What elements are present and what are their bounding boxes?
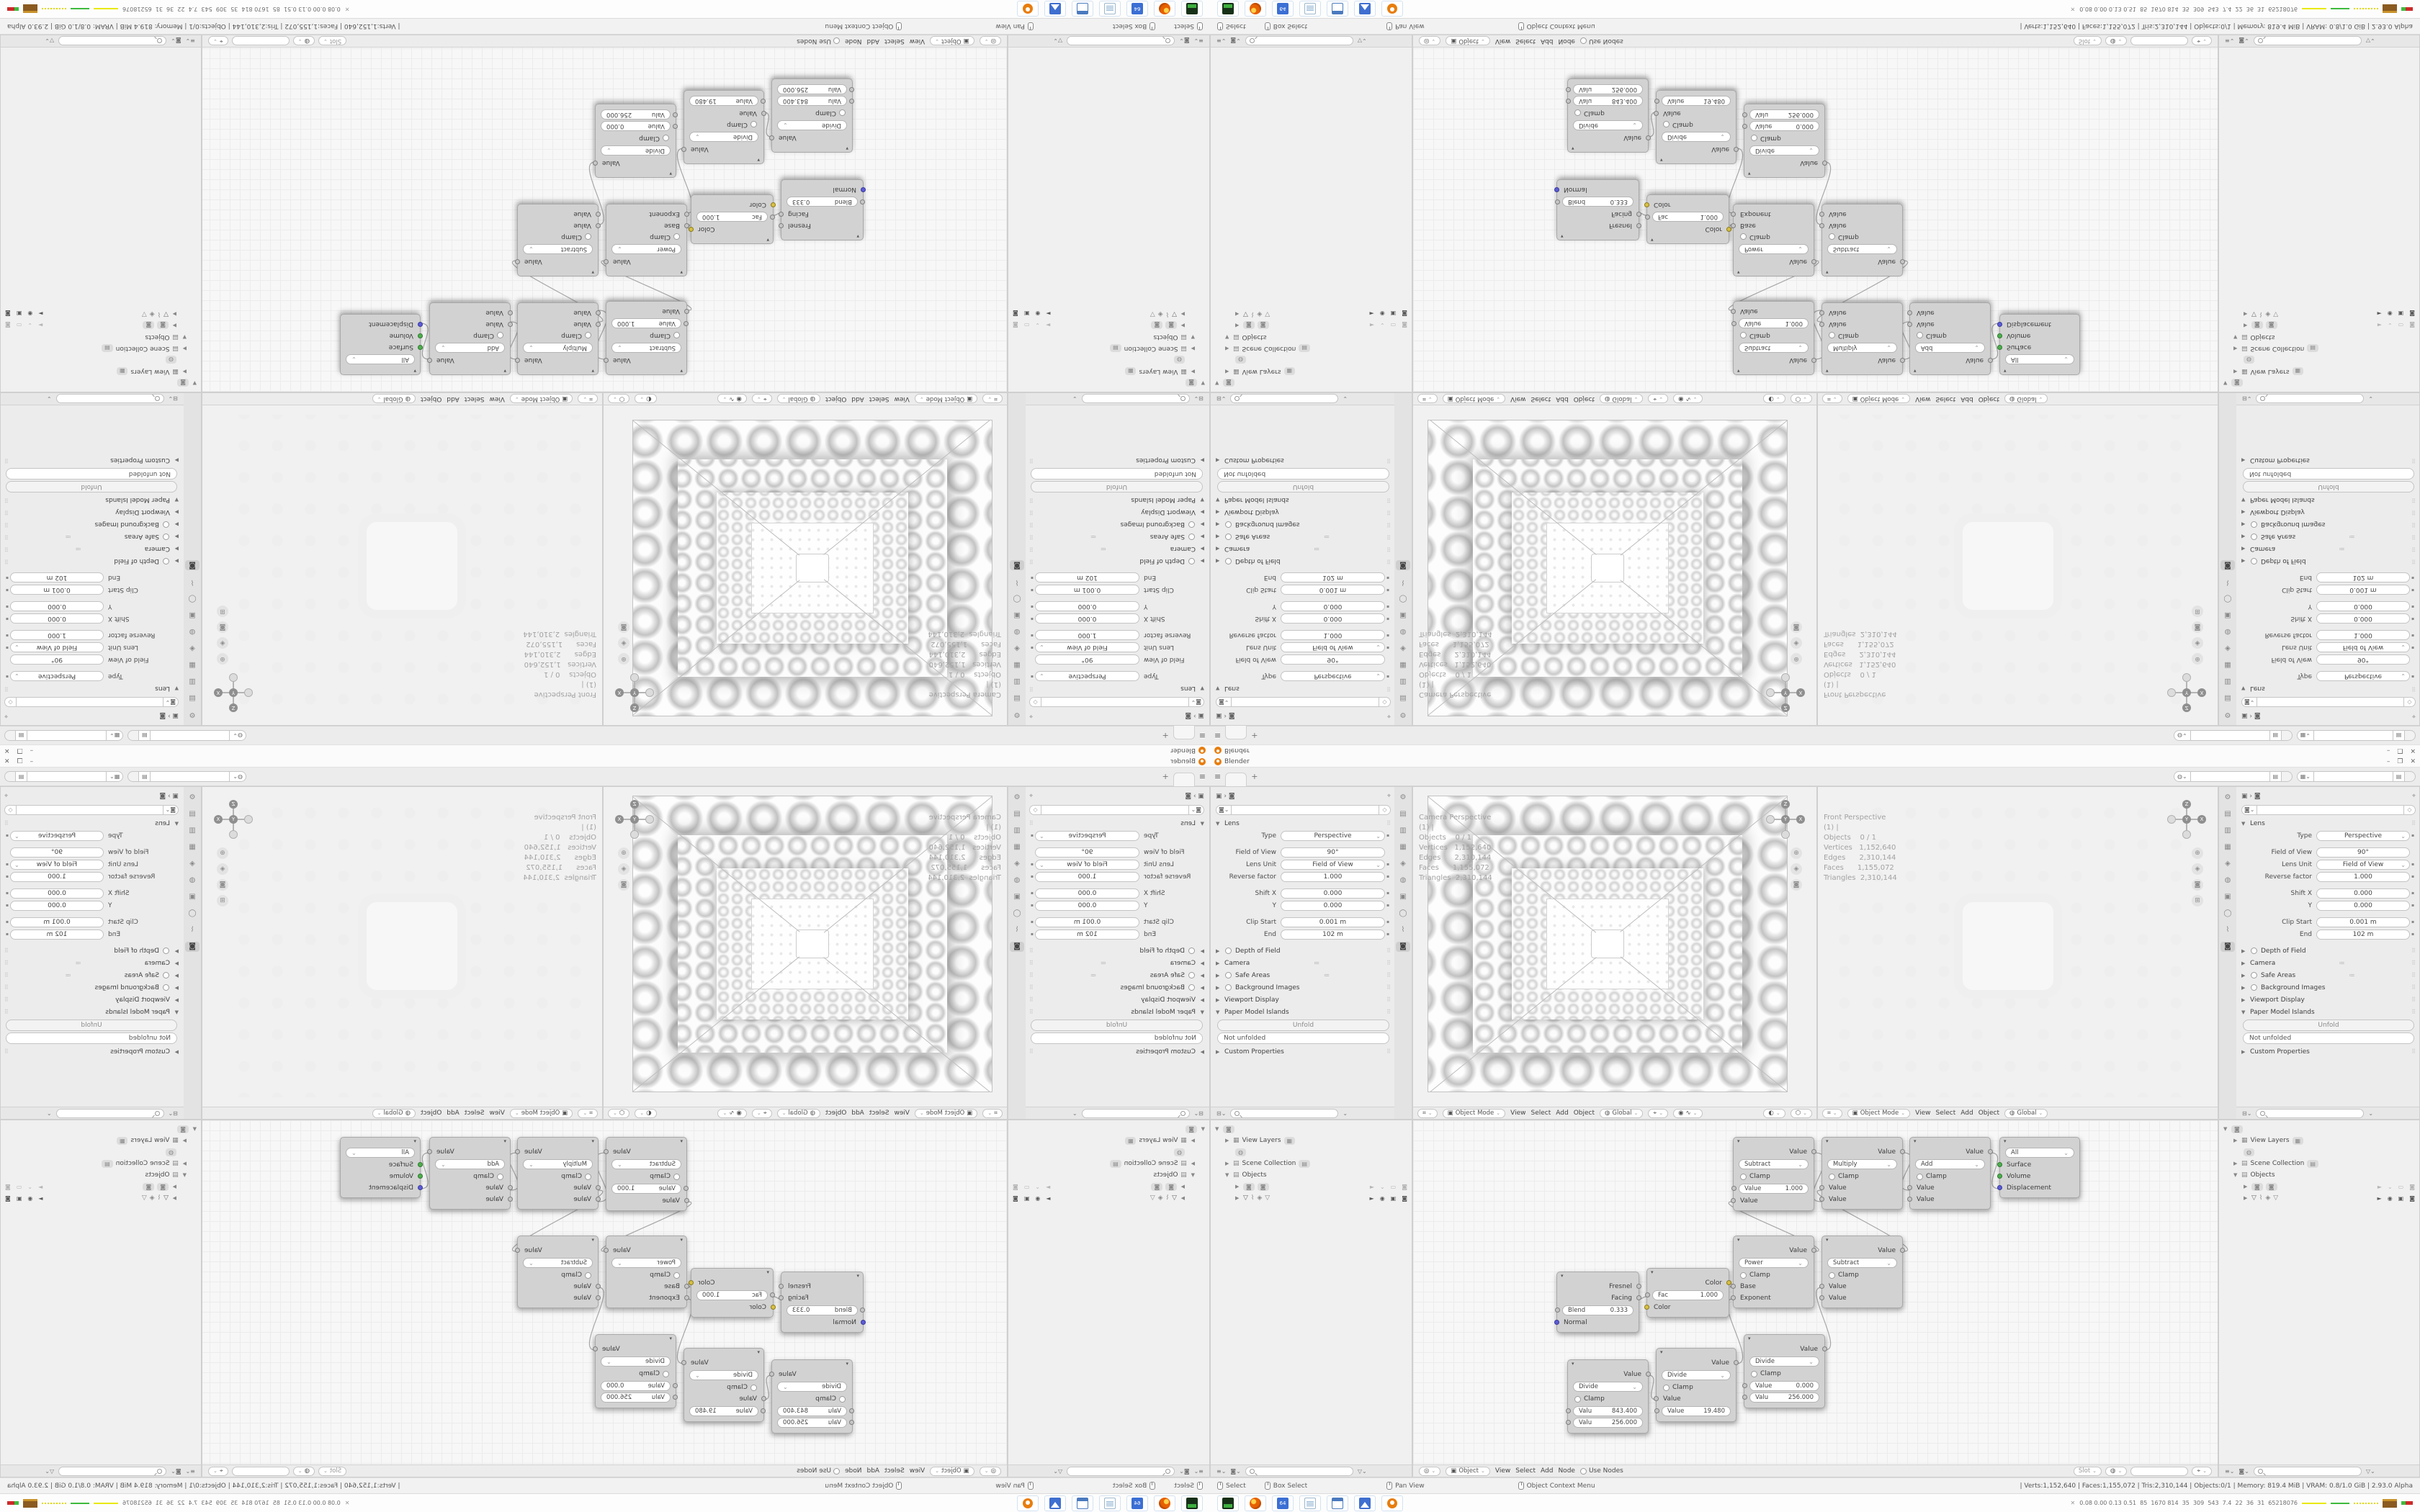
taskbar-image-viewer-icon[interactable] — [1044, 1495, 1066, 1511]
reverse-factor-field[interactable]: 1.000 — [1281, 631, 1385, 641]
close-button[interactable]: ✕ — [4, 758, 10, 765]
outliner-search-input[interactable] — [2254, 37, 2362, 46]
reverse-factor-field[interactable]: 1.000 — [2316, 872, 2410, 882]
tab-object[interactable]: ▣ — [1010, 892, 1024, 902]
hide-icon[interactable]: ⌄ — [27, 1184, 32, 1190]
panel-viewport-display[interactable]: ▶Viewport Display⠿ — [4, 994, 179, 1006]
material-output-node[interactable]: ▾ All⌄ Surface Volume Displacement — [340, 1137, 421, 1198]
minimize-button[interactable]: – — [30, 758, 34, 765]
math-operation-dropdown[interactable]: Divide⌄ — [1662, 1370, 1731, 1380]
selectable-icon[interactable]: ► — [38, 1184, 42, 1190]
gizmo-x-neg[interactable] — [2167, 815, 2176, 824]
panel-lens[interactable]: ▼Lens⠿ — [1029, 817, 1204, 829]
dof-checkbox[interactable] — [1225, 558, 1232, 564]
math-divide-node[interactable]: ▾ Value Divide⌄ Clamp Valu843.400 Valu25… — [771, 1359, 853, 1434]
outliner-search-input[interactable] — [1245, 37, 1353, 46]
workspace-tab[interactable] — [1173, 726, 1195, 740]
panel-paper-model-islands[interactable]: ▼Paper Model Islands⠿ — [4, 1006, 179, 1018]
filter-dropdown[interactable]: ▽⌄ — [2366, 38, 2375, 45]
slot-dropdown[interactable]: Slot⌄ — [318, 37, 346, 46]
panel-depth-of-field[interactable]: ▶Depth of Field⠿ — [2241, 555, 2416, 567]
panel-custom-properties[interactable]: ▶Custom Properties⠿ — [4, 454, 179, 467]
outliner-row-view-layers[interactable]: ▶▦View Layers▦ — [1008, 1135, 1209, 1146]
pan-hand-icon[interactable]: ◈ — [217, 863, 228, 875]
clip-start-field[interactable]: 0.001 m — [1281, 917, 1385, 927]
invert-node[interactable]: ▾ Color Fac1.000 Color — [691, 1268, 774, 1318]
fake-user-shield-icon[interactable]: ◇ — [2404, 697, 2416, 707]
editor-type-dropdown[interactable]: ◎⌄ — [1419, 37, 1440, 46]
scene-selector[interactable]: ◍⌄▤ — [2174, 730, 2293, 741]
clamp-checkbox[interactable] — [585, 234, 591, 240]
panel-safe-areas[interactable]: ▶Safe Areas≔⠿ — [1216, 969, 1391, 981]
panel-camera[interactable]: ▶Camera≔⠿ — [4, 957, 179, 969]
tab-tool[interactable]: ⚙ — [1396, 709, 1410, 719]
math-add-node[interactable]: ▾ Value Add⌄ Clamp Value Value — [429, 1137, 511, 1210]
render-disable-icon[interactable]: ◙ — [1402, 1195, 1407, 1202]
menu-add[interactable]: Add — [447, 1110, 459, 1117]
reverse-factor-field[interactable]: 1.000 — [1035, 872, 1139, 882]
gizmo-x-neg[interactable] — [2167, 688, 2176, 697]
panel-depth-of-field[interactable]: ▶Depth of Field⠿ — [1216, 555, 1391, 567]
taskbar-firefox-icon[interactable] — [1154, 1, 1175, 17]
editor-type-dropdown[interactable]: ◎⌄ — [980, 37, 1001, 46]
value-field[interactable]: Valu256.000 — [1573, 84, 1643, 94]
hide-icon[interactable]: ⌄ — [1380, 1184, 1385, 1190]
reverse-factor-field[interactable]: 1.000 — [2316, 631, 2410, 641]
panel-custom-properties[interactable]: ▶Custom Properties⠿ — [4, 1045, 179, 1058]
display-mode-dropdown[interactable]: ≡⌄ — [1216, 38, 1226, 45]
value-field[interactable]: Value0.000 — [1749, 1381, 1819, 1391]
clamp-checkbox[interactable] — [1740, 333, 1747, 339]
gizmo-y-axis[interactable]: Y — [630, 688, 639, 697]
node-collapse-arrow[interactable]: ▾ — [1910, 1138, 1990, 1146]
outliner-row-scene-collection[interactable]: ▶▤Scene Collection▤ — [1211, 1158, 1412, 1169]
material-icon-dropdown[interactable]: ◍⌄ — [2105, 37, 2127, 46]
bg-images-checkbox[interactable] — [163, 984, 169, 991]
tray-close-icon[interactable]: ✕ — [345, 6, 350, 12]
minimize-button[interactable]: – — [30, 747, 34, 755]
tab-object[interactable]: ▣ — [1010, 610, 1024, 620]
pin-icon[interactable]: ⌖ — [1387, 793, 1391, 800]
orientation-dropdown[interactable]: ◍Global⌄ — [372, 1109, 416, 1118]
taskbar-system-monitor-icon[interactable] — [1181, 1, 1203, 17]
camera-view-icon[interactable]: ◙ — [217, 621, 228, 633]
taskbar-notepad-icon[interactable] — [1099, 1, 1121, 17]
render-disable-icon[interactable]: ◙ — [1402, 311, 1407, 318]
outliner-row-camera-object[interactable]: ▶◙◙►⌄▭◙ — [1, 320, 201, 331]
panel-paper-model-islands[interactable]: ▼Paper Model Islands⠿ — [1216, 1006, 1391, 1018]
invert-node[interactable]: ▾ Color Fac1.000 Color — [1646, 194, 1729, 244]
clamp-checkbox[interactable] — [1740, 234, 1747, 240]
menu-hamburger-icon[interactable]: ≡ — [1214, 731, 1221, 740]
zoom-icon[interactable]: ⊕ — [618, 653, 629, 665]
pin-icon[interactable]: ⌖ — [2412, 793, 2416, 800]
outliner-row-camera-object[interactable]: ▶◙◙►⌄▭◙ — [1008, 320, 1209, 331]
safe-areas-checkbox[interactable] — [1188, 534, 1195, 540]
editor-type-dropdown[interactable]: ⌗⌄ — [982, 1109, 1003, 1118]
node-collapse-arrow[interactable]: ▾ — [1734, 1138, 1814, 1146]
orientation-dropdown[interactable]: ◍Global⌄ — [777, 1109, 820, 1118]
tab-physics[interactable]: ◯ — [1396, 909, 1410, 919]
tab-constraints[interactable]: ⌇ — [2220, 925, 2235, 935]
tab-view-layer[interactable]: ▦ — [2220, 660, 2235, 670]
math-subtract-node[interactable]: ▾ Value Subtract⌄ Clamp Value1.000 Value — [1733, 301, 1814, 375]
math-power-node[interactable]: ▾ Value Power⌄ Clamp Base Exponent — [1733, 204, 1814, 276]
viewport-disable-icon[interactable]: ▭ — [1391, 323, 1397, 329]
outliner-row-camera-object[interactable]: ▶◙◙►⌄▭◙ — [1211, 320, 1412, 331]
add-workspace-button[interactable]: + — [1162, 772, 1169, 781]
lens-unit-dropdown[interactable]: Field of View — [1281, 643, 1385, 653]
camera-data-field[interactable] — [2257, 805, 2404, 815]
output-target-dropdown[interactable]: All⌄ — [2005, 1148, 2074, 1158]
search-input[interactable] — [56, 1109, 164, 1118]
math-subtract-node[interactable]: ▾ Value Subtract⌄ Clamp Value1.000 Value — [1733, 1137, 1814, 1211]
panel-viewport-display[interactable]: ▶Viewport Display⠿ — [4, 506, 179, 518]
menu-add[interactable]: Add — [867, 1467, 879, 1475]
view-layer-selector[interactable]: ▦⌄▤ — [2297, 730, 2416, 741]
output-target-dropdown[interactable]: All⌄ — [2005, 354, 2074, 364]
display-mode-dropdown[interactable]: ≡⌄ — [186, 38, 195, 45]
outliner-scene-icon[interactable]: ◙⌄ — [2238, 1468, 2249, 1475]
gizmo-x-axis[interactable]: X — [2197, 815, 2206, 824]
shift-y-field[interactable]: 0.000 — [1281, 901, 1385, 911]
math-subtract-node[interactable]: ▾ Value Subtract⌄ Clamp Value Value — [517, 1236, 599, 1308]
safe-areas-checkbox[interactable] — [1188, 972, 1195, 978]
shift-y-field[interactable]: 0.000 — [1035, 901, 1139, 911]
new-scene-button[interactable]: ▤ — [2270, 730, 2282, 741]
outliner-row-objects[interactable]: ▼▤Objects — [1211, 331, 1412, 343]
lens-type-dropdown[interactable]: Perspective — [10, 672, 104, 682]
clamp-checkbox[interactable] — [663, 135, 669, 142]
workspace-tab[interactable] — [1173, 773, 1195, 786]
camera-data-icon[interactable]: ◙⌄ — [2241, 697, 2257, 707]
panel-lens[interactable]: ▼Lens⠿ — [1216, 683, 1391, 695]
gizmo-y-axis[interactable]: Y — [2182, 688, 2191, 697]
unfold-button[interactable]: Unfold — [1217, 1020, 1389, 1031]
outliner-row-objects[interactable]: ▼▤Objects — [1, 1169, 201, 1181]
close-button[interactable]: ✕ — [4, 747, 10, 755]
snap-dropdown[interactable]: ⌖⌄ — [1648, 1109, 1668, 1118]
maximize-button[interactable]: ❐ — [2397, 747, 2403, 755]
outliner-row-scene-collection[interactable]: ▶▤Scene Collection▤ — [2219, 1158, 2419, 1169]
panel-custom-properties[interactable]: ▶Custom Properties⠿ — [1029, 1045, 1204, 1058]
clamp-checkbox[interactable] — [1740, 1272, 1747, 1279]
shift-x-field[interactable]: 0.000 — [2316, 888, 2410, 899]
editor-type-dropdown[interactable]: ⌗⌄ — [1417, 1109, 1438, 1118]
panel-background-images[interactable]: ▶Background Images⠿ — [4, 981, 179, 994]
hide-icon[interactable]: ◉ — [1035, 311, 1040, 318]
tab-tool[interactable]: ⚙ — [1010, 793, 1024, 803]
lens-type-dropdown[interactable]: Perspective — [10, 831, 104, 841]
math-operation-dropdown[interactable]: Divide⌄ — [601, 1356, 671, 1367]
zoom-icon[interactable]: ⊕ — [1791, 653, 1802, 665]
gizmo-z-axis[interactable]: Z — [1781, 800, 1790, 809]
tab-object-data[interactable]: ◙ — [1010, 942, 1024, 952]
clip-end-field[interactable]: 102 m — [1281, 573, 1385, 583]
panel-safe-areas[interactable]: ▶Safe Areas≔⠿ — [1029, 969, 1204, 981]
math-multiply-node[interactable]: ▾ Value Multiply⌄ Clamp Value Value — [517, 302, 599, 375]
menu-select[interactable]: Select — [1935, 395, 1955, 402]
panel-camera[interactable]: ▶Camera≔⠿ — [2241, 957, 2416, 969]
math-operation-dropdown[interactable]: Divide⌄ — [689, 132, 758, 142]
camera-data-field[interactable] — [1041, 697, 1188, 707]
tab-view-layer[interactable]: ▦ — [185, 660, 200, 670]
gizmo-z-axis[interactable]: Z — [630, 800, 639, 809]
safe-areas-checkbox[interactable] — [1225, 972, 1232, 978]
viewport-front[interactable]: Front Perspective(1) |Objects 0 / 1Verti… — [1817, 786, 2218, 1120]
clamp-checkbox[interactable] — [1751, 135, 1757, 142]
node-collapse-arrow[interactable]: ▾ — [2000, 366, 2079, 374]
menu-select[interactable]: Select — [884, 1467, 905, 1475]
taskbar-window-app-icon[interactable] — [1327, 1495, 1348, 1511]
options-chevron-icon[interactable]: ⌄ — [2368, 1110, 2373, 1117]
viewport-camera[interactable]: Camera Perspective(1) |Objects 0 / 1Vert… — [603, 392, 1008, 726]
safe-areas-checkbox[interactable] — [2251, 972, 2257, 978]
gizmo-z-neg[interactable] — [1781, 673, 1790, 682]
editor-type-dropdown[interactable]: ⌗⌄ — [578, 395, 598, 404]
bg-images-checkbox[interactable] — [1225, 984, 1232, 991]
viewport-camera[interactable]: Camera Perspective(1) |Objects 0 / 1Vert… — [603, 786, 1008, 1120]
taskbar-system-monitor-icon[interactable] — [1217, 1495, 1239, 1511]
material-output-node[interactable]: ▾ All⌄ Surface Volume Displacement — [340, 314, 421, 375]
node-collapse-arrow[interactable]: ▾ — [1568, 143, 1648, 152]
math-operation-dropdown[interactable]: Power⌄ — [1739, 1258, 1809, 1268]
render-disable-icon[interactable]: ◙ — [2409, 1195, 2415, 1202]
panel-custom-properties[interactable]: ▶Custom Properties⠿ — [2241, 454, 2416, 467]
value-field[interactable]: Value19.480 — [1662, 1406, 1731, 1416]
camera-view-icon[interactable]: ◙ — [618, 621, 629, 633]
material-name-field[interactable] — [232, 37, 290, 46]
render-disable-icon[interactable]: ◙ — [1013, 311, 1018, 318]
editor-type-icon[interactable]: ⊟⌄ — [2242, 396, 2251, 402]
tab-constraints[interactable]: ⌇ — [185, 925, 200, 935]
tab-object-data[interactable]: ◙ — [185, 942, 200, 952]
math-divide-node[interactable]: ▾ Value Divide⌄ Clamp Valu843.400 Valu25… — [1567, 78, 1649, 153]
safe-areas-checkbox[interactable] — [163, 972, 169, 978]
clip-end-field[interactable]: 102 m — [2316, 573, 2410, 583]
tab-world[interactable]: ◍ — [1396, 626, 1410, 636]
render-disable-icon[interactable]: ◙ — [1402, 1184, 1407, 1190]
menu-view[interactable]: View — [895, 1110, 910, 1117]
value-field[interactable]: Value0.000 — [601, 1381, 671, 1391]
fac-value-field[interactable]: Fac1.000 — [1652, 1290, 1724, 1300]
tab-output[interactable]: ▥ — [185, 676, 200, 686]
new-scene-button[interactable]: ▤ — [2270, 771, 2282, 782]
outliner-row-mesh-object[interactable]: ▶▽⌇◈▽►◉▣◙ — [1211, 1192, 1412, 1204]
outliner-row-objects[interactable]: ▼▤Objects — [1211, 1169, 1412, 1181]
math-divide-node[interactable]: ▾ Value Divide⌄ Clamp Value0.000 Valu256… — [595, 1334, 676, 1408]
hide-icon[interactable]: ⌄ — [1035, 1184, 1040, 1190]
menu-object[interactable]: Object — [825, 395, 846, 402]
navigation-gizmo[interactable]: Z X Y — [2167, 673, 2206, 712]
fake-user-shield-icon[interactable]: ◇ — [1379, 697, 1391, 707]
outliner-scene-icon[interactable]: ◙⌄ — [1179, 38, 1189, 45]
zoom-icon[interactable]: ⊕ — [2192, 847, 2203, 859]
outliner-search-input[interactable] — [1245, 1467, 1353, 1476]
clamp-checkbox[interactable] — [1829, 1272, 1835, 1279]
pin-icon[interactable]: ⌖ — [4, 712, 8, 719]
clamp-checkbox[interactable] — [585, 1174, 591, 1180]
hide-icon[interactable]: ◉ — [1380, 1195, 1385, 1202]
math-operation-dropdown[interactable]: Multiply⌄ — [523, 343, 593, 353]
selectable-icon[interactable]: ► — [2378, 311, 2382, 318]
value-field[interactable]: Valu256.000 — [1573, 1418, 1643, 1428]
math-operation-dropdown[interactable]: Multiply⌄ — [523, 1159, 593, 1169]
remove-view-layer-button[interactable] — [4, 771, 15, 782]
viewport-disable-icon[interactable]: ▭ — [17, 1184, 22, 1190]
menu-hamburger-icon[interactable]: ≡ — [1199, 731, 1206, 740]
menu-node[interactable]: Node — [1558, 37, 1575, 45]
tab-constraints[interactable]: ⌇ — [1010, 925, 1024, 935]
view-layer-selector[interactable]: ▦⌄▤ — [2297, 771, 2416, 782]
viewport-disable-icon[interactable]: ▣ — [1024, 311, 1030, 318]
tab-render[interactable]: ▤ — [2220, 693, 2235, 703]
menu-add[interactable]: Add — [851, 1110, 864, 1117]
gizmo-y-axis[interactable]: Y — [1781, 688, 1790, 697]
gizmo-x-axis[interactable]: X — [214, 815, 223, 824]
panel-viewport-display[interactable]: ▶Viewport Display⠿ — [1216, 506, 1391, 518]
math-subtract-node[interactable]: ▾ Value Subtract⌄ Clamp Value1.000 Value — [606, 1137, 687, 1211]
unfold-button[interactable]: Unfold — [1031, 1020, 1203, 1031]
shader-editor[interactable]: ▾ Fresnel Facing Blend0.333 Normal ▾ Col… — [202, 35, 1008, 392]
menu-select[interactable]: Select — [1515, 1467, 1536, 1475]
search-input[interactable] — [1230, 1109, 1338, 1118]
shift-y-field[interactable]: 0.000 — [1281, 602, 1385, 612]
value-field[interactable]: Valu256.000 — [777, 84, 847, 94]
node-collapse-arrow[interactable]: ▾ — [1910, 366, 1990, 374]
menu-select[interactable]: Select — [1531, 1110, 1551, 1117]
new-view-layer-button[interactable]: ▤ — [15, 771, 27, 782]
outliner-row-view-layers[interactable]: ▶▦View Layers▦ — [1211, 366, 1412, 377]
material-name-field[interactable] — [2130, 37, 2188, 46]
math-operation-dropdown[interactable]: Divide⌄ — [777, 1382, 847, 1392]
tab-output[interactable]: ▥ — [1396, 826, 1410, 836]
node-collapse-arrow[interactable]: ▾ — [781, 231, 863, 240]
math-operation-dropdown[interactable]: Subtract⌄ — [1739, 1159, 1809, 1169]
render-disable-icon[interactable]: ◙ — [2409, 323, 2415, 329]
clip-start-field[interactable]: 0.001 m — [2316, 917, 2410, 927]
value-field[interactable]: Valu843.400 — [1573, 96, 1643, 106]
math-operation-dropdown[interactable]: Subtract⌄ — [1827, 1258, 1897, 1268]
camera-data-field[interactable] — [16, 697, 163, 707]
math-multiply-node[interactable]: ▾ Value Multiply⌄ Clamp Value Value — [1821, 1137, 1903, 1210]
clip-end-field[interactable]: 102 m — [1035, 930, 1139, 940]
gizmo-z-neg[interactable] — [229, 830, 238, 839]
workspace-tab[interactable] — [1225, 773, 1247, 786]
blend-value-field[interactable]: Blend0.333 — [1562, 1305, 1633, 1315]
menu-node[interactable]: Node — [1558, 1467, 1575, 1475]
tab-render[interactable]: ▤ — [185, 693, 200, 703]
view-layer-selector[interactable]: ▦⌄▤ — [4, 730, 123, 741]
snapping-toggle[interactable]: ⌖⌄ — [208, 37, 228, 46]
math-add-node[interactable]: ▾ Value Add⌄ Clamp Value Value — [1909, 1137, 1991, 1210]
selectable-icon[interactable]: ► — [38, 1195, 42, 1202]
fac-value-field[interactable]: Fac1.000 — [696, 1290, 768, 1300]
outliner-search-input[interactable] — [58, 37, 166, 46]
menu-node[interactable]: Node — [845, 37, 862, 45]
clip-start-field[interactable]: 0.001 m — [1035, 917, 1139, 927]
unlink-scene-button[interactable] — [2282, 771, 2293, 782]
pan-hand-icon[interactable]: ◈ — [217, 637, 228, 649]
material-output-node[interactable]: ▾ All⌄ Surface Volume Displacement — [1999, 1137, 2080, 1198]
orientation-dropdown[interactable]: ◍Global⌄ — [372, 395, 416, 404]
hide-icon[interactable]: ◉ — [27, 1195, 32, 1202]
editor-type-icon[interactable]: ⊟⌄ — [1194, 396, 1204, 402]
hide-icon[interactable]: ◉ — [1035, 1195, 1040, 1202]
math-operation-dropdown[interactable]: Divide⌄ — [1662, 132, 1731, 142]
outliner-row-scene[interactable]: ▼◙ — [1008, 1123, 1209, 1135]
material-output-node[interactable]: ▾ All⌄ Surface Volume Displacement — [1999, 314, 2080, 375]
outliner-row-view-layers[interactable]: ▶▦View Layers▦ — [1, 1135, 201, 1146]
panel-camera[interactable]: ▶Camera≔⠿ — [1029, 543, 1204, 555]
bg-images-checkbox[interactable] — [1188, 521, 1195, 528]
panel-safe-areas[interactable]: ▶Safe Areas≔⠿ — [2241, 969, 2416, 981]
camera-view-icon[interactable]: ◙ — [618, 879, 629, 891]
editor-type-dropdown[interactable]: ⌗⌄ — [1822, 395, 1842, 404]
hide-icon[interactable]: ◉ — [2388, 311, 2393, 318]
clamp-checkbox[interactable] — [750, 122, 757, 128]
panel-viewport-display[interactable]: ▶Viewport Display⠿ — [1029, 506, 1204, 518]
menu-select[interactable]: Select — [1515, 37, 1536, 45]
unfold-button[interactable]: Unfold — [2243, 481, 2414, 492]
outliner-row-world[interactable]: ◍ — [2219, 354, 2419, 366]
clamp-checkbox[interactable] — [673, 1174, 680, 1180]
fov-field[interactable]: 90° — [10, 655, 104, 665]
taskbar-firefox-icon[interactable] — [1245, 1495, 1266, 1511]
lens-type-dropdown[interactable]: Perspective — [1281, 831, 1385, 841]
shader-editor[interactable]: ▾ Fresnel Facing Blend0.333 Normal ▾ Col… — [1412, 1120, 2218, 1477]
gizmo-z-neg[interactable] — [630, 830, 639, 839]
menu-object[interactable]: Object — [1978, 395, 1999, 402]
clamp-checkbox[interactable] — [673, 234, 680, 240]
gizmo-x-neg[interactable] — [645, 815, 654, 824]
editor-type-icon[interactable]: ⊟⌄ — [169, 396, 178, 402]
outliner-row-scene-collection[interactable]: ▶▤Scene Collection▤ — [1008, 1158, 1209, 1169]
viewport-disable-icon[interactable]: ▣ — [1391, 1195, 1397, 1202]
use-nodes-toggle[interactable]: Use Nodes — [1580, 37, 1623, 45]
use-nodes-toggle[interactable]: Use Nodes — [1580, 1467, 1623, 1475]
shader-editor[interactable]: ▾ Fresnel Facing Blend0.333 Normal ▾ Col… — [1412, 35, 2218, 392]
panel-paper-model-islands[interactable]: ▼Paper Model Islands⠿ — [2241, 1006, 2416, 1018]
scene-field[interactable] — [150, 730, 229, 741]
add-workspace-button[interactable]: + — [1251, 731, 1258, 740]
orientation-dropdown[interactable]: ◍Global⌄ — [1600, 395, 1643, 404]
render-disable-icon[interactable]: ◙ — [5, 323, 11, 329]
search-input[interactable] — [1082, 395, 1190, 404]
node-collapse-arrow[interactable]: ▾ — [1822, 1138, 1902, 1146]
camera-data-field[interactable] — [1232, 697, 1379, 707]
menu-select[interactable]: Select — [465, 1110, 485, 1117]
render-disable-icon[interactable]: ◙ — [1013, 1195, 1018, 1202]
outliner-row-scene-collection[interactable]: ▶▤Scene Collection▤ — [1211, 343, 1412, 354]
tab-constraints[interactable]: ⌇ — [185, 577, 200, 587]
layer-weight-node[interactable]: ▾ Fresnel Facing Blend0.333 Normal — [781, 1272, 864, 1333]
new-scene-button[interactable]: ▤ — [138, 771, 150, 782]
node-collapse-arrow[interactable]: ▾ — [1568, 1360, 1648, 1369]
math-divide-node[interactable]: ▾ Value Divide⌄ Clamp Value Value19.480 — [684, 1348, 764, 1422]
render-disable-icon[interactable]: ◙ — [1013, 1184, 1018, 1190]
clamp-checkbox[interactable] — [585, 1272, 591, 1279]
value-field[interactable]: Value0.000 — [601, 121, 671, 131]
editor-type-icon[interactable]: ⊟⌄ — [1216, 396, 1226, 402]
use-nodes-toggle[interactable]: Use Nodes — [797, 37, 840, 45]
menu-select[interactable]: Select — [1531, 395, 1551, 402]
gizmo-y-axis[interactable]: Y — [630, 815, 639, 824]
clip-start-field[interactable]: 0.001 m — [10, 917, 104, 927]
node-collapse-arrow[interactable]: ▾ — [430, 1138, 510, 1146]
viewport-disable-icon[interactable]: ▭ — [1024, 1184, 1030, 1190]
hide-icon[interactable]: ⌄ — [2388, 323, 2393, 329]
